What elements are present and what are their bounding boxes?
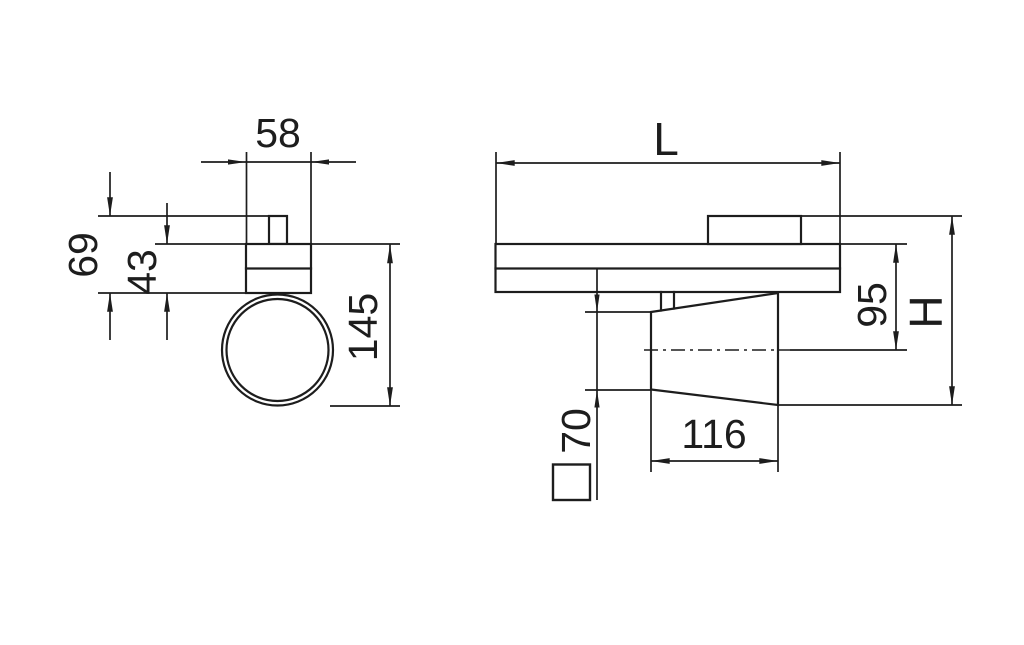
dim-116-label: 116 <box>681 411 746 457</box>
side-view: L 95 H 70 116 <box>496 113 963 500</box>
track-adapter-front <box>269 216 287 244</box>
front-view: 58 69 43 145 <box>60 110 400 406</box>
dim-145-label: 145 <box>340 293 386 361</box>
square-profile-symbol <box>553 465 590 501</box>
dim-70-label: 70 <box>553 408 599 454</box>
dim-69-label: 69 <box>60 232 106 278</box>
lamp-head-outer-circle <box>222 295 333 406</box>
dim-43-label: 43 <box>119 249 165 295</box>
dim-L-label: L <box>653 113 679 165</box>
dim-square-70: 70 <box>553 295 651 501</box>
dim-95-label: 95 <box>849 282 895 328</box>
lamp-head-cone <box>651 293 778 405</box>
dim-58-label: 58 <box>255 110 301 156</box>
dim-height-145: 145 <box>330 245 400 407</box>
dimension-drawing: 58 69 43 145 <box>0 0 1024 645</box>
dim-H-label: H <box>900 295 952 328</box>
track-adapter-side <box>708 216 801 244</box>
